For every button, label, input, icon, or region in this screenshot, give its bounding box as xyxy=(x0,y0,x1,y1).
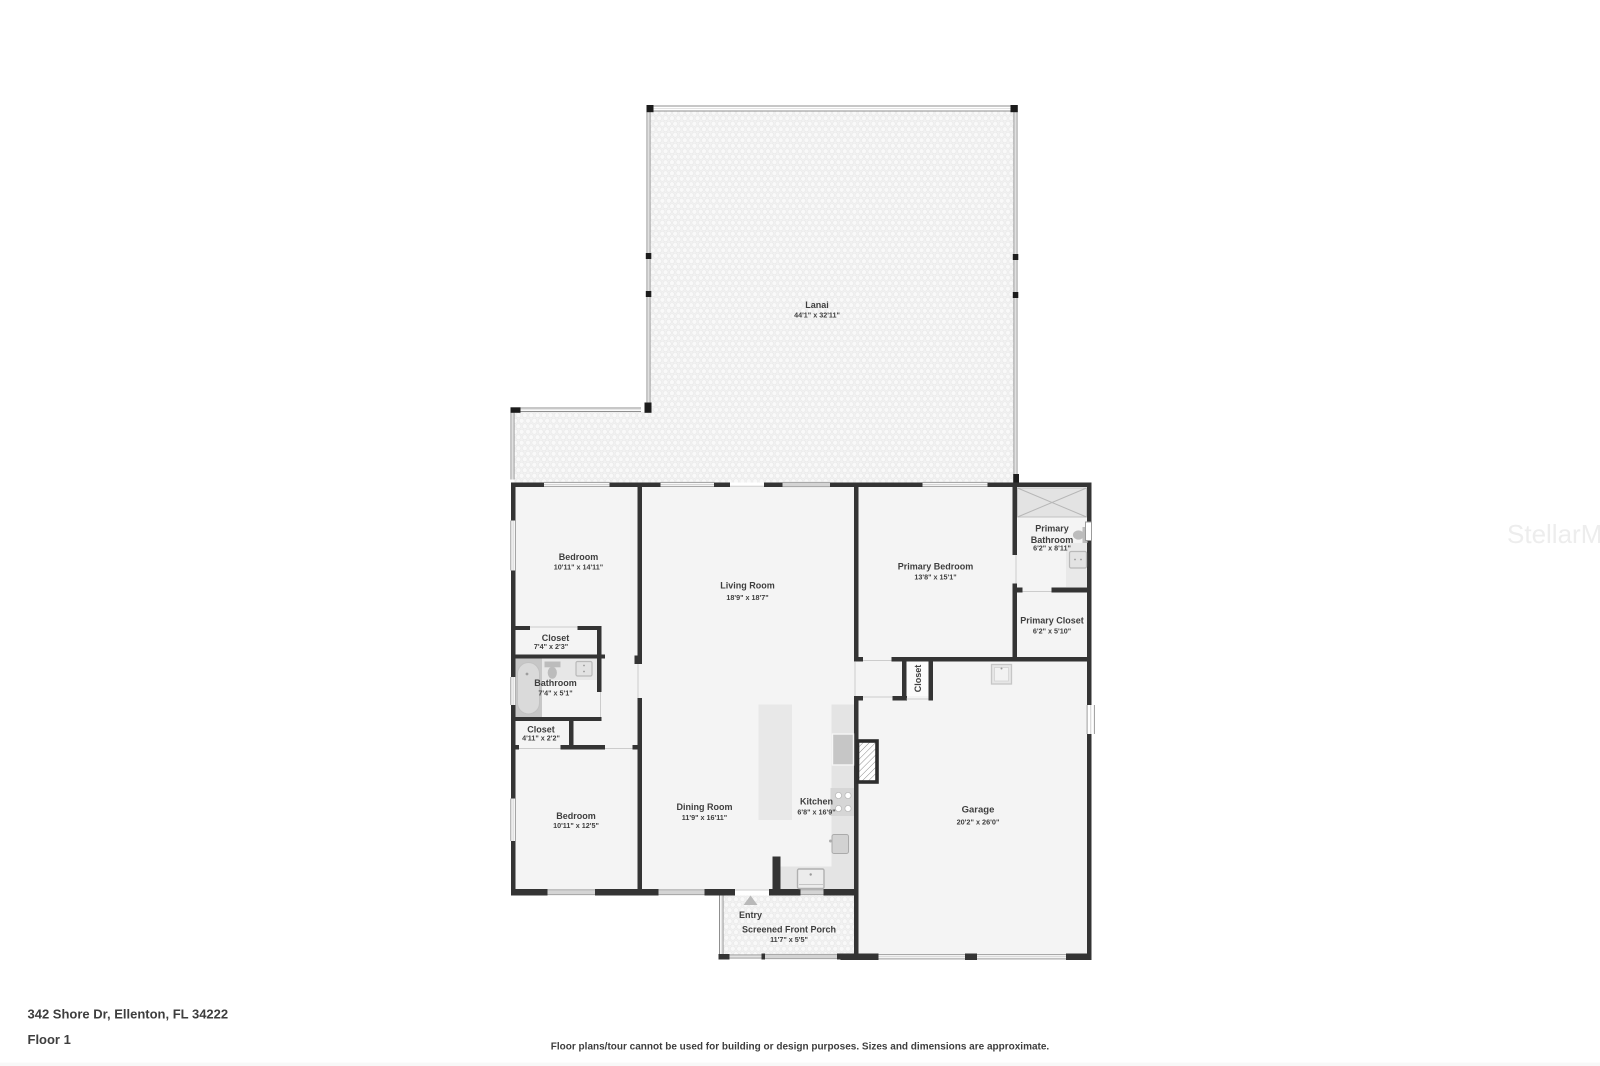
svg-text:18'9" x 18'7": 18'9" x 18'7" xyxy=(726,593,768,602)
svg-text:11'9" x 16'11": 11'9" x 16'11" xyxy=(682,813,727,822)
svg-text:Living Room: Living Room xyxy=(720,581,775,591)
svg-text:Floor 1: Floor 1 xyxy=(28,1032,71,1047)
svg-text:6'2" x 5'10": 6'2" x 5'10" xyxy=(1033,627,1071,636)
svg-text:20'2" x 26'0": 20'2" x 26'0" xyxy=(957,818,1000,827)
svg-text:4'11" x 2'2": 4'11" x 2'2" xyxy=(522,734,560,743)
svg-text:Garage: Garage xyxy=(962,805,995,816)
svg-text:Bedroom: Bedroom xyxy=(556,811,596,821)
svg-text:7'4" x 2'3": 7'4" x 2'3" xyxy=(534,642,568,651)
svg-text:Primary: Primary xyxy=(1035,524,1069,534)
svg-text:Bathroom: Bathroom xyxy=(534,678,577,688)
svg-text:Screened Front Porch: Screened Front Porch xyxy=(742,925,836,935)
svg-text:Bedroom: Bedroom xyxy=(559,552,599,562)
svg-text:342 Shore Dr, Ellenton, FL 342: 342 Shore Dr, Ellenton, FL 34222 xyxy=(28,1007,229,1022)
svg-text:Primary Closet: Primary Closet xyxy=(1020,616,1084,626)
svg-text:Lanai: Lanai xyxy=(805,300,829,310)
svg-text:Dining Room: Dining Room xyxy=(677,802,733,812)
svg-text:7'4" x 5'1": 7'4" x 5'1" xyxy=(538,689,572,698)
svg-text:Closet: Closet xyxy=(913,665,923,693)
svg-text:Kitchen: Kitchen xyxy=(800,797,833,807)
svg-text:Floor plans/tour cannot be use: Floor plans/tour cannot be used for buil… xyxy=(551,1042,1050,1053)
svg-text:10'11" x 12'5": 10'11" x 12'5" xyxy=(553,821,599,830)
svg-text:11'7" x 5'5": 11'7" x 5'5" xyxy=(770,935,808,944)
svg-text:6'2" x 8'11": 6'2" x 8'11" xyxy=(1033,544,1071,553)
svg-text:Entry: Entry xyxy=(739,910,762,920)
svg-text:13'8" x 15'1": 13'8" x 15'1" xyxy=(914,573,956,582)
svg-text:StellarMLS: StellarMLS xyxy=(1507,519,1600,549)
svg-text:Primary Bedroom: Primary Bedroom xyxy=(898,562,974,572)
svg-text:10'11" x 14'11": 10'11" x 14'11" xyxy=(554,563,603,572)
svg-text:44'1" x 32'11": 44'1" x 32'11" xyxy=(794,311,840,320)
svg-text:6'8" x 16'9": 6'8" x 16'9" xyxy=(797,808,835,817)
